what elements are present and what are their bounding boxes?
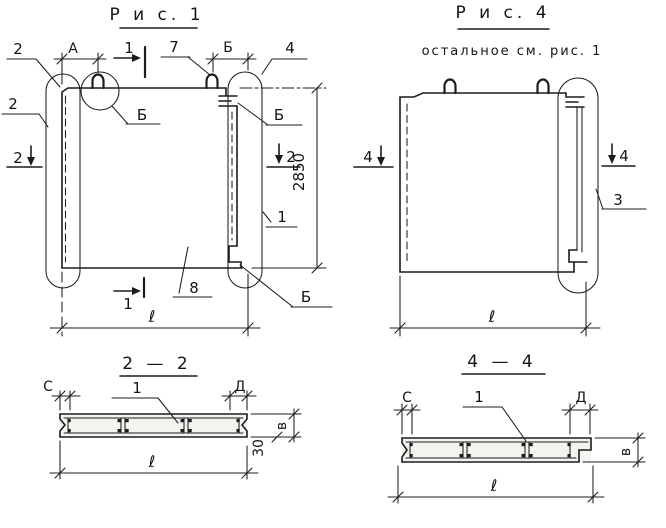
left-edge-strip xyxy=(46,74,80,288)
figure4-subtitle: остальное см. рис. 1 xyxy=(422,44,603,59)
section44-title: 4 — 4 xyxy=(467,352,536,372)
s44-dim-thickness: в xyxy=(583,433,645,467)
s44-dim-C: С xyxy=(394,390,420,434)
fig4-lifting-loop-right xyxy=(538,80,549,93)
section44-slab xyxy=(402,438,591,462)
svg-text:Б: Б xyxy=(223,40,233,56)
section1-marker-top: 1 xyxy=(114,39,145,77)
dim-A: А xyxy=(54,41,106,84)
svg-text:2: 2 xyxy=(8,95,18,113)
svg-text:С: С xyxy=(43,379,53,395)
detail-circle xyxy=(81,72,119,110)
svg-text:3: 3 xyxy=(613,191,623,209)
section2-marker-left: 2 xyxy=(7,146,42,167)
s22-dim-length: ℓ xyxy=(50,441,258,479)
svg-text:ℓ: ℓ xyxy=(488,307,496,326)
svg-text:4: 4 xyxy=(285,39,295,57)
callout-1: 1 xyxy=(263,208,297,227)
svg-text:ℓ: ℓ xyxy=(490,476,498,495)
detail-callout-left: Б xyxy=(137,106,147,124)
svg-text:2850: 2850 xyxy=(290,153,308,191)
svg-text:7: 7 xyxy=(169,38,179,56)
svg-text:1: 1 xyxy=(123,295,133,313)
callout-3: 3 xyxy=(596,189,646,209)
fig4-right-edge-strip xyxy=(558,78,598,293)
s22-dim-thickness: в xyxy=(251,409,301,442)
svg-text:ℓ: ℓ xyxy=(148,452,156,471)
fig4-dim-length: ℓ xyxy=(390,276,600,336)
svg-text:1: 1 xyxy=(277,208,287,226)
callout-2-left: 2 xyxy=(2,95,48,127)
svg-text:8: 8 xyxy=(189,279,199,297)
svg-text:1: 1 xyxy=(132,379,142,397)
svg-text:Б: Б xyxy=(301,288,311,306)
callout-4: 4 xyxy=(262,39,307,74)
s22-dim-30: 30 xyxy=(251,432,282,457)
detail-callout-right: Б xyxy=(238,103,302,125)
svg-text:4: 4 xyxy=(363,148,373,166)
section1-marker-bottom: 1 xyxy=(114,278,144,313)
svg-text:Д: Д xyxy=(576,390,587,406)
dim-B: Б xyxy=(206,40,256,72)
detail-leader xyxy=(112,106,128,124)
svg-text:2: 2 xyxy=(13,40,23,58)
figure1-title: Р и с. 1 xyxy=(109,5,204,25)
svg-text:30: 30 xyxy=(251,439,267,457)
section4-marker-left: 4 xyxy=(354,146,393,167)
figure4-title: Р и с. 4 xyxy=(455,3,550,23)
section-2-2: 2 — 2 С xyxy=(43,354,301,479)
svg-text:1: 1 xyxy=(474,388,484,406)
svg-text:С: С xyxy=(402,390,412,406)
section22-slab xyxy=(60,414,247,437)
svg-text:2: 2 xyxy=(13,149,23,167)
s44-callout-1: 1 xyxy=(463,388,526,441)
figure1-elevation: Р и с. 1 Б А xyxy=(2,5,332,336)
section4-marker-right: 4 xyxy=(602,144,635,166)
s44-dim-length: ℓ xyxy=(388,466,604,503)
section22-title: 2 — 2 xyxy=(122,354,191,374)
svg-text:в: в xyxy=(618,448,634,456)
callout-2-top: 2 xyxy=(7,40,60,87)
figure1-panel-outline xyxy=(62,88,242,268)
fig4-lifting-loop-left xyxy=(445,80,456,93)
technical-drawing-sheet: Р и с. 1 Б А xyxy=(0,0,666,528)
svg-text:в: в xyxy=(274,422,290,430)
callout-7: 7 xyxy=(161,38,210,75)
svg-text:А: А xyxy=(68,41,78,57)
svg-text:Д: Д xyxy=(235,379,246,395)
lifting-loop-left xyxy=(93,75,104,88)
s22-dim-C: С xyxy=(43,379,80,410)
svg-text:ℓ: ℓ xyxy=(148,307,156,326)
lifting-loop-right xyxy=(207,75,218,88)
figure4-elevation: Р и с. 4 остальное см. рис. 1 4 4 xyxy=(354,3,646,336)
section-4-4: 4 — 4 С xyxy=(388,352,645,503)
s22-dim-D: Д xyxy=(222,379,256,410)
svg-text:Б: Б xyxy=(274,106,284,124)
drawing-canvas: Р и с. 1 Б А xyxy=(0,0,666,528)
s44-dim-D: Д xyxy=(562,390,598,434)
figure4-panel-outline xyxy=(400,93,587,272)
svg-text:4: 4 xyxy=(619,147,629,165)
callout-8: 8 xyxy=(173,247,212,297)
right-edge-strip xyxy=(228,72,262,288)
fig1-dim-length: ℓ xyxy=(50,272,260,336)
